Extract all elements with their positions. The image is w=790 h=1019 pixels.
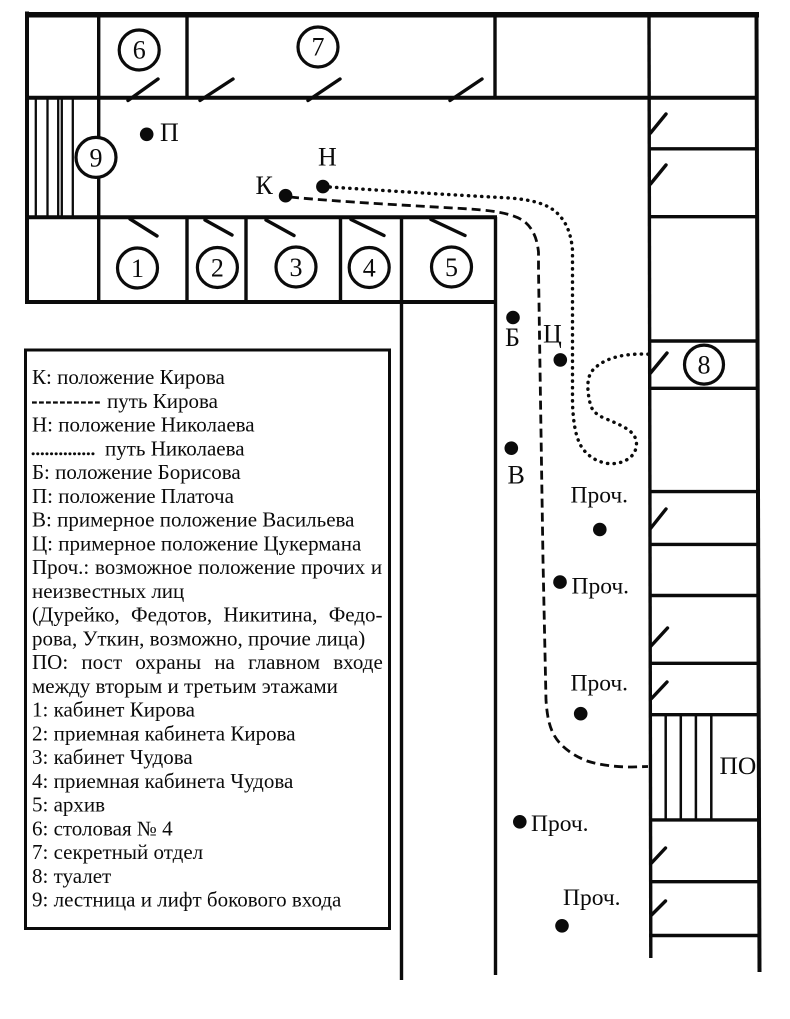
svg-text:6: столовая № 4: 6: столовая № 4 xyxy=(32,816,173,840)
svg-text:2: приемная кабинета Кирова: 2: приемная кабинета Кирова xyxy=(32,721,296,745)
svg-text:6: 6 xyxy=(133,36,146,65)
svg-text:2: 2 xyxy=(211,254,224,283)
svg-text:К: положение Кирова: К: положение Кирова xyxy=(32,365,225,389)
svg-text:7: секретный отдел: 7: секретный отдел xyxy=(32,840,203,864)
svg-text:Проч.: Проч. xyxy=(571,671,629,697)
svg-text:В: В xyxy=(508,461,525,490)
svg-text:П: положение Платоча: П: положение Платоча xyxy=(32,484,235,508)
svg-text:3: 3 xyxy=(290,253,303,282)
svg-text:К: К xyxy=(256,171,274,200)
svg-text:4: 4 xyxy=(363,254,376,283)
svg-text:Ц: примерное положение Цукерма: Ц: примерное положение Цукермана xyxy=(32,531,362,555)
svg-text:9: лестница и лифт бокового вх: 9: лестница и лифт бокового входа xyxy=(32,888,342,912)
svg-text:между вторым и третьим этажами: между вторым и третьим этажами xyxy=(32,674,338,698)
svg-text:4: приемная кабинета Чудова: 4: приемная кабинета Чудова xyxy=(32,769,294,793)
svg-text:Б: Б xyxy=(505,323,520,352)
svg-text:Ц: Ц xyxy=(543,320,562,349)
svg-text:Проч.: Проч. xyxy=(563,885,621,911)
svg-text:путь Кирова: путь Кирова xyxy=(107,389,219,413)
svg-text:Проч.: возможное положение про: Проч.: возможное положение прочих и xyxy=(32,555,382,579)
svg-text:Проч.: Проч. xyxy=(571,483,629,509)
svg-text:3: кабинет Чудова: 3: кабинет Чудова xyxy=(32,745,193,769)
svg-text:ПО: пост охраны на главном вхо: ПО: пост охраны на главном входе xyxy=(32,650,383,674)
svg-text:путь Николаева: путь Николаева xyxy=(105,436,245,460)
svg-text:1: 1 xyxy=(131,254,144,283)
svg-text:Н: Н xyxy=(318,143,337,172)
svg-text:Б: положение Борисова: Б: положение Борисова xyxy=(32,460,241,484)
svg-text:неизвестных лиц: неизвестных лиц xyxy=(32,579,184,603)
svg-text:8: 8 xyxy=(698,351,711,380)
svg-text:рова, Уткин, возможно, прочие: рова, Уткин, возможно, прочие лица) xyxy=(32,626,365,650)
svg-text:8: туалет: 8: туалет xyxy=(32,864,111,888)
svg-text:9: 9 xyxy=(90,143,103,172)
svg-text:Проч.: Проч. xyxy=(531,811,589,837)
svg-text:(Дурейко, Федотов, Никитина, Ф: (Дурейко, Федотов, Никитина, Федо- xyxy=(32,603,383,627)
svg-text:5: архив: 5: архив xyxy=(32,793,105,817)
svg-text:В: примерное положение Василье: В: примерное положение Васильева xyxy=(32,508,355,532)
svg-text:1: кабинет Кирова: 1: кабинет Кирова xyxy=(32,698,196,722)
svg-text:Н: положение Николаева: Н: положение Николаева xyxy=(32,413,255,437)
svg-text:5: 5 xyxy=(445,253,458,282)
svg-text:7: 7 xyxy=(312,33,325,62)
svg-text:Проч.: Проч. xyxy=(572,574,630,600)
svg-text:ПО: ПО xyxy=(720,751,757,780)
svg-text:П: П xyxy=(160,118,179,147)
